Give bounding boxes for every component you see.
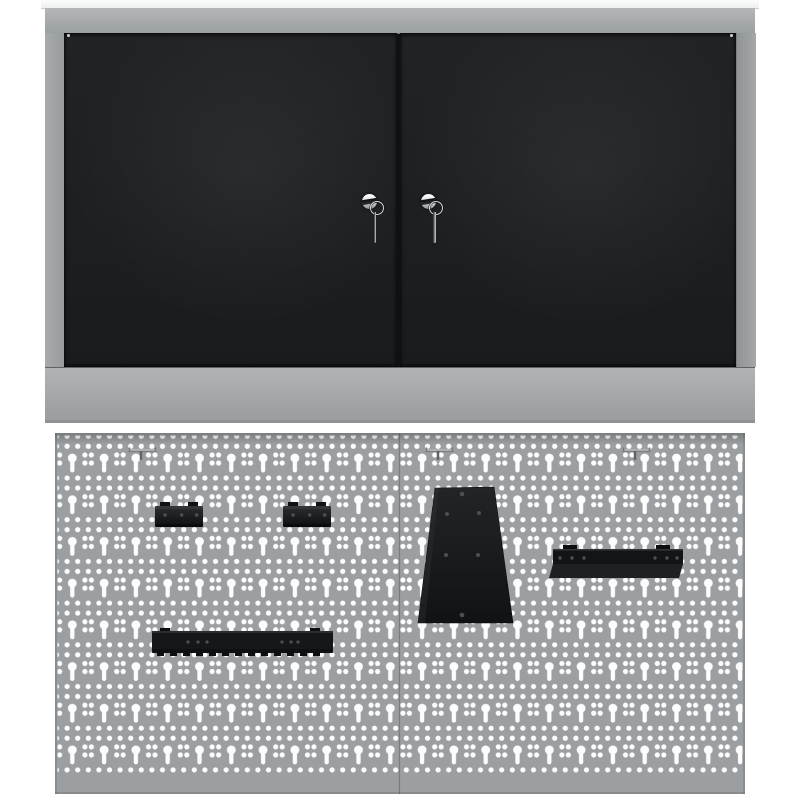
key-ring-left [370, 201, 384, 215]
cabinet-door-left [64, 33, 397, 367]
key-right [433, 212, 436, 243]
tool-rail [549, 545, 683, 578]
product-image [0, 0, 800, 800]
pegboard [55, 433, 745, 794]
cabinet-frame-left [45, 33, 65, 367]
pegboard-graphic [55, 433, 745, 794]
cabinet-frame-right [736, 33, 756, 367]
long-tool-rail [152, 628, 333, 656]
cabinet-door-right [400, 33, 736, 367]
cabinet-frame-top [45, 8, 755, 34]
cabinet-bottom-edge [45, 420, 755, 423]
hinge-pin [730, 34, 733, 37]
hinge-pin [67, 34, 70, 37]
key-left [374, 212, 377, 243]
wall-cabinet [45, 0, 755, 423]
cabinet-bottom-rail [45, 367, 755, 421]
